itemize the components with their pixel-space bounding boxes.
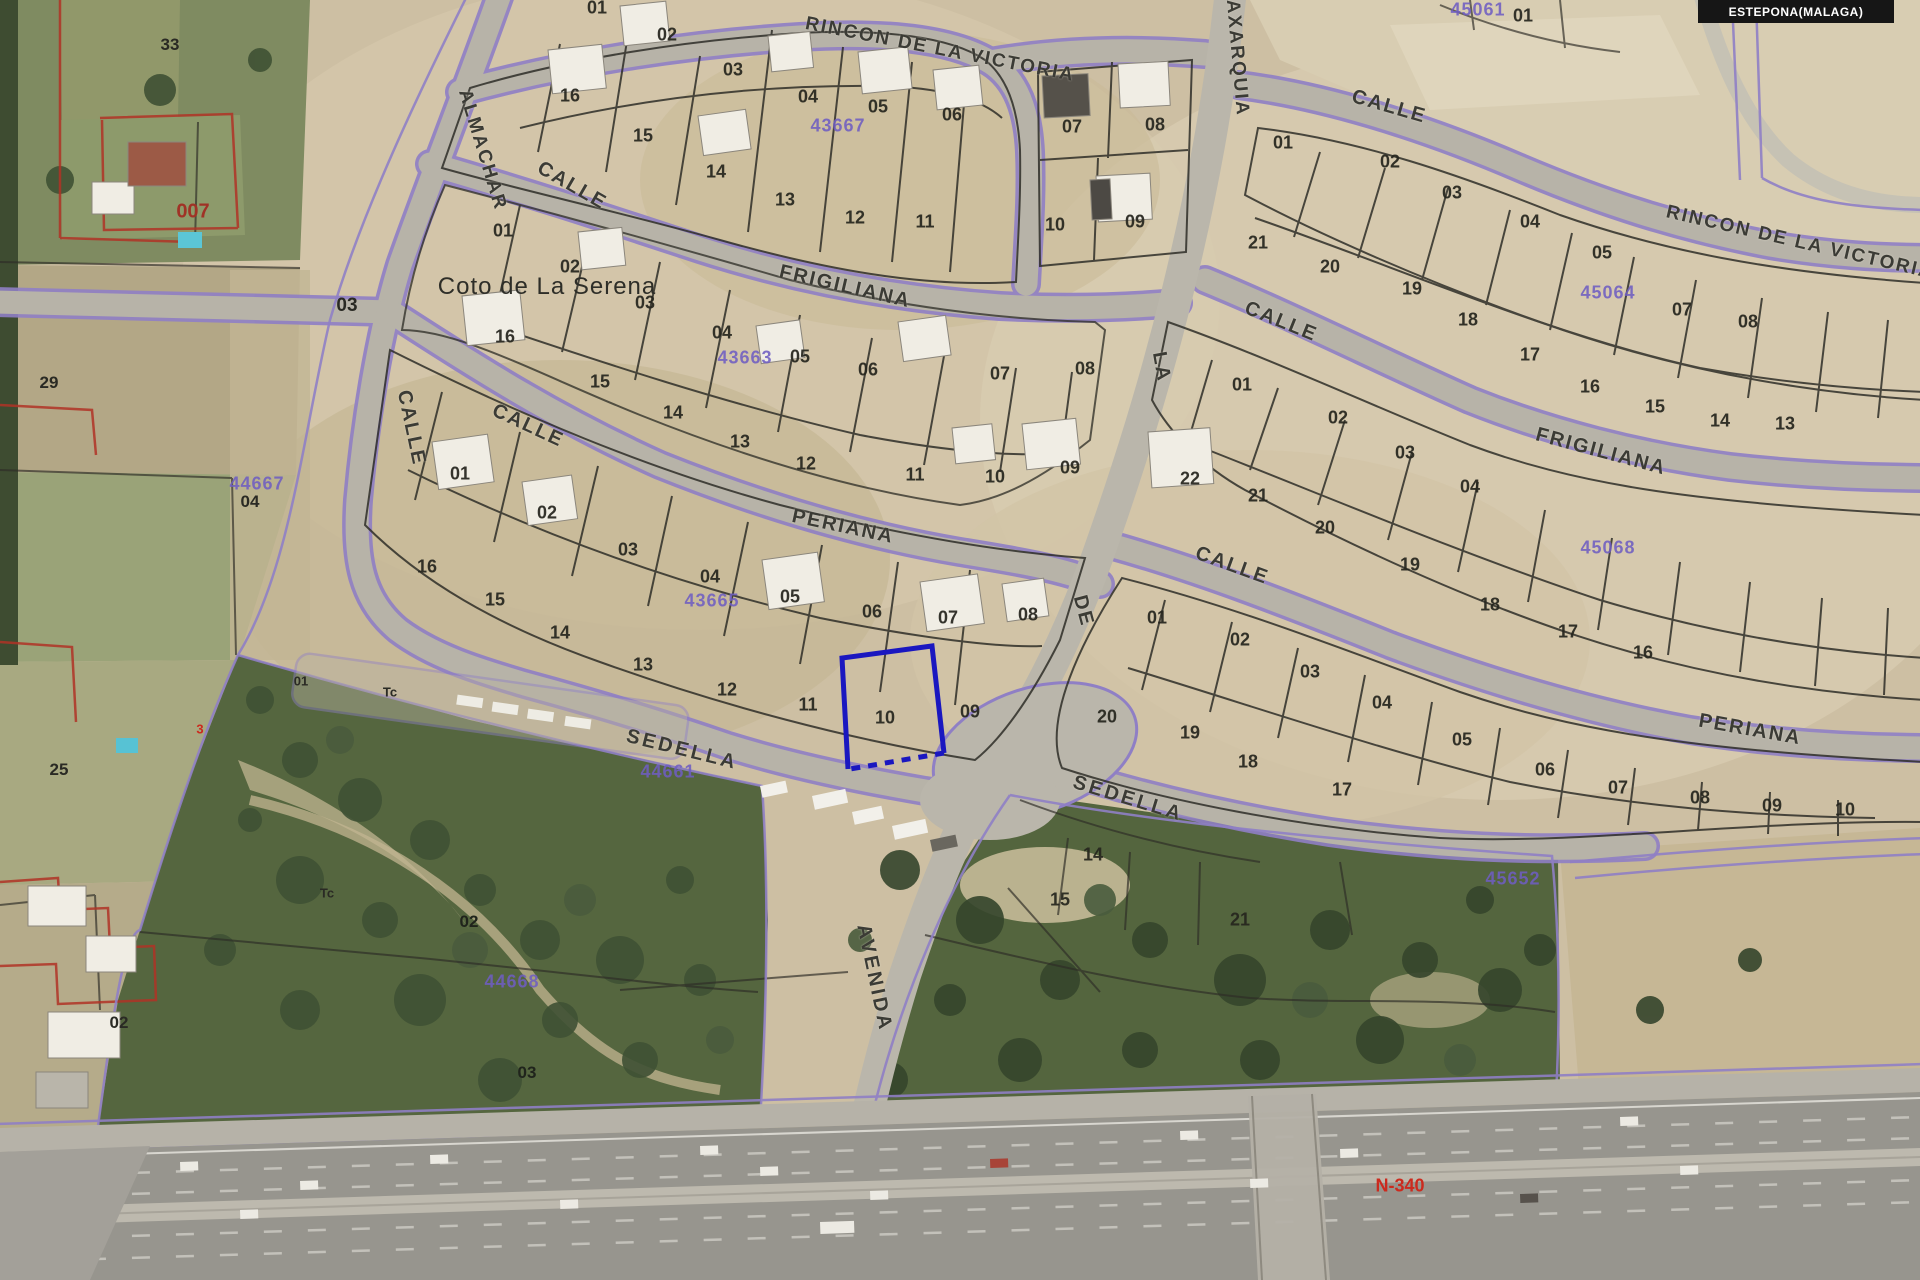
aerial-map-canvas [0, 0, 1920, 1280]
municipality-badge: ESTEPONA(MALAGA) [1698, 0, 1894, 23]
cadastral-map-viewport: RINCON DE LA VICTORIAALMACHARCALLEFRIGIL… [0, 0, 1920, 1280]
place-name-label: Coto de La Serena [438, 273, 656, 301]
